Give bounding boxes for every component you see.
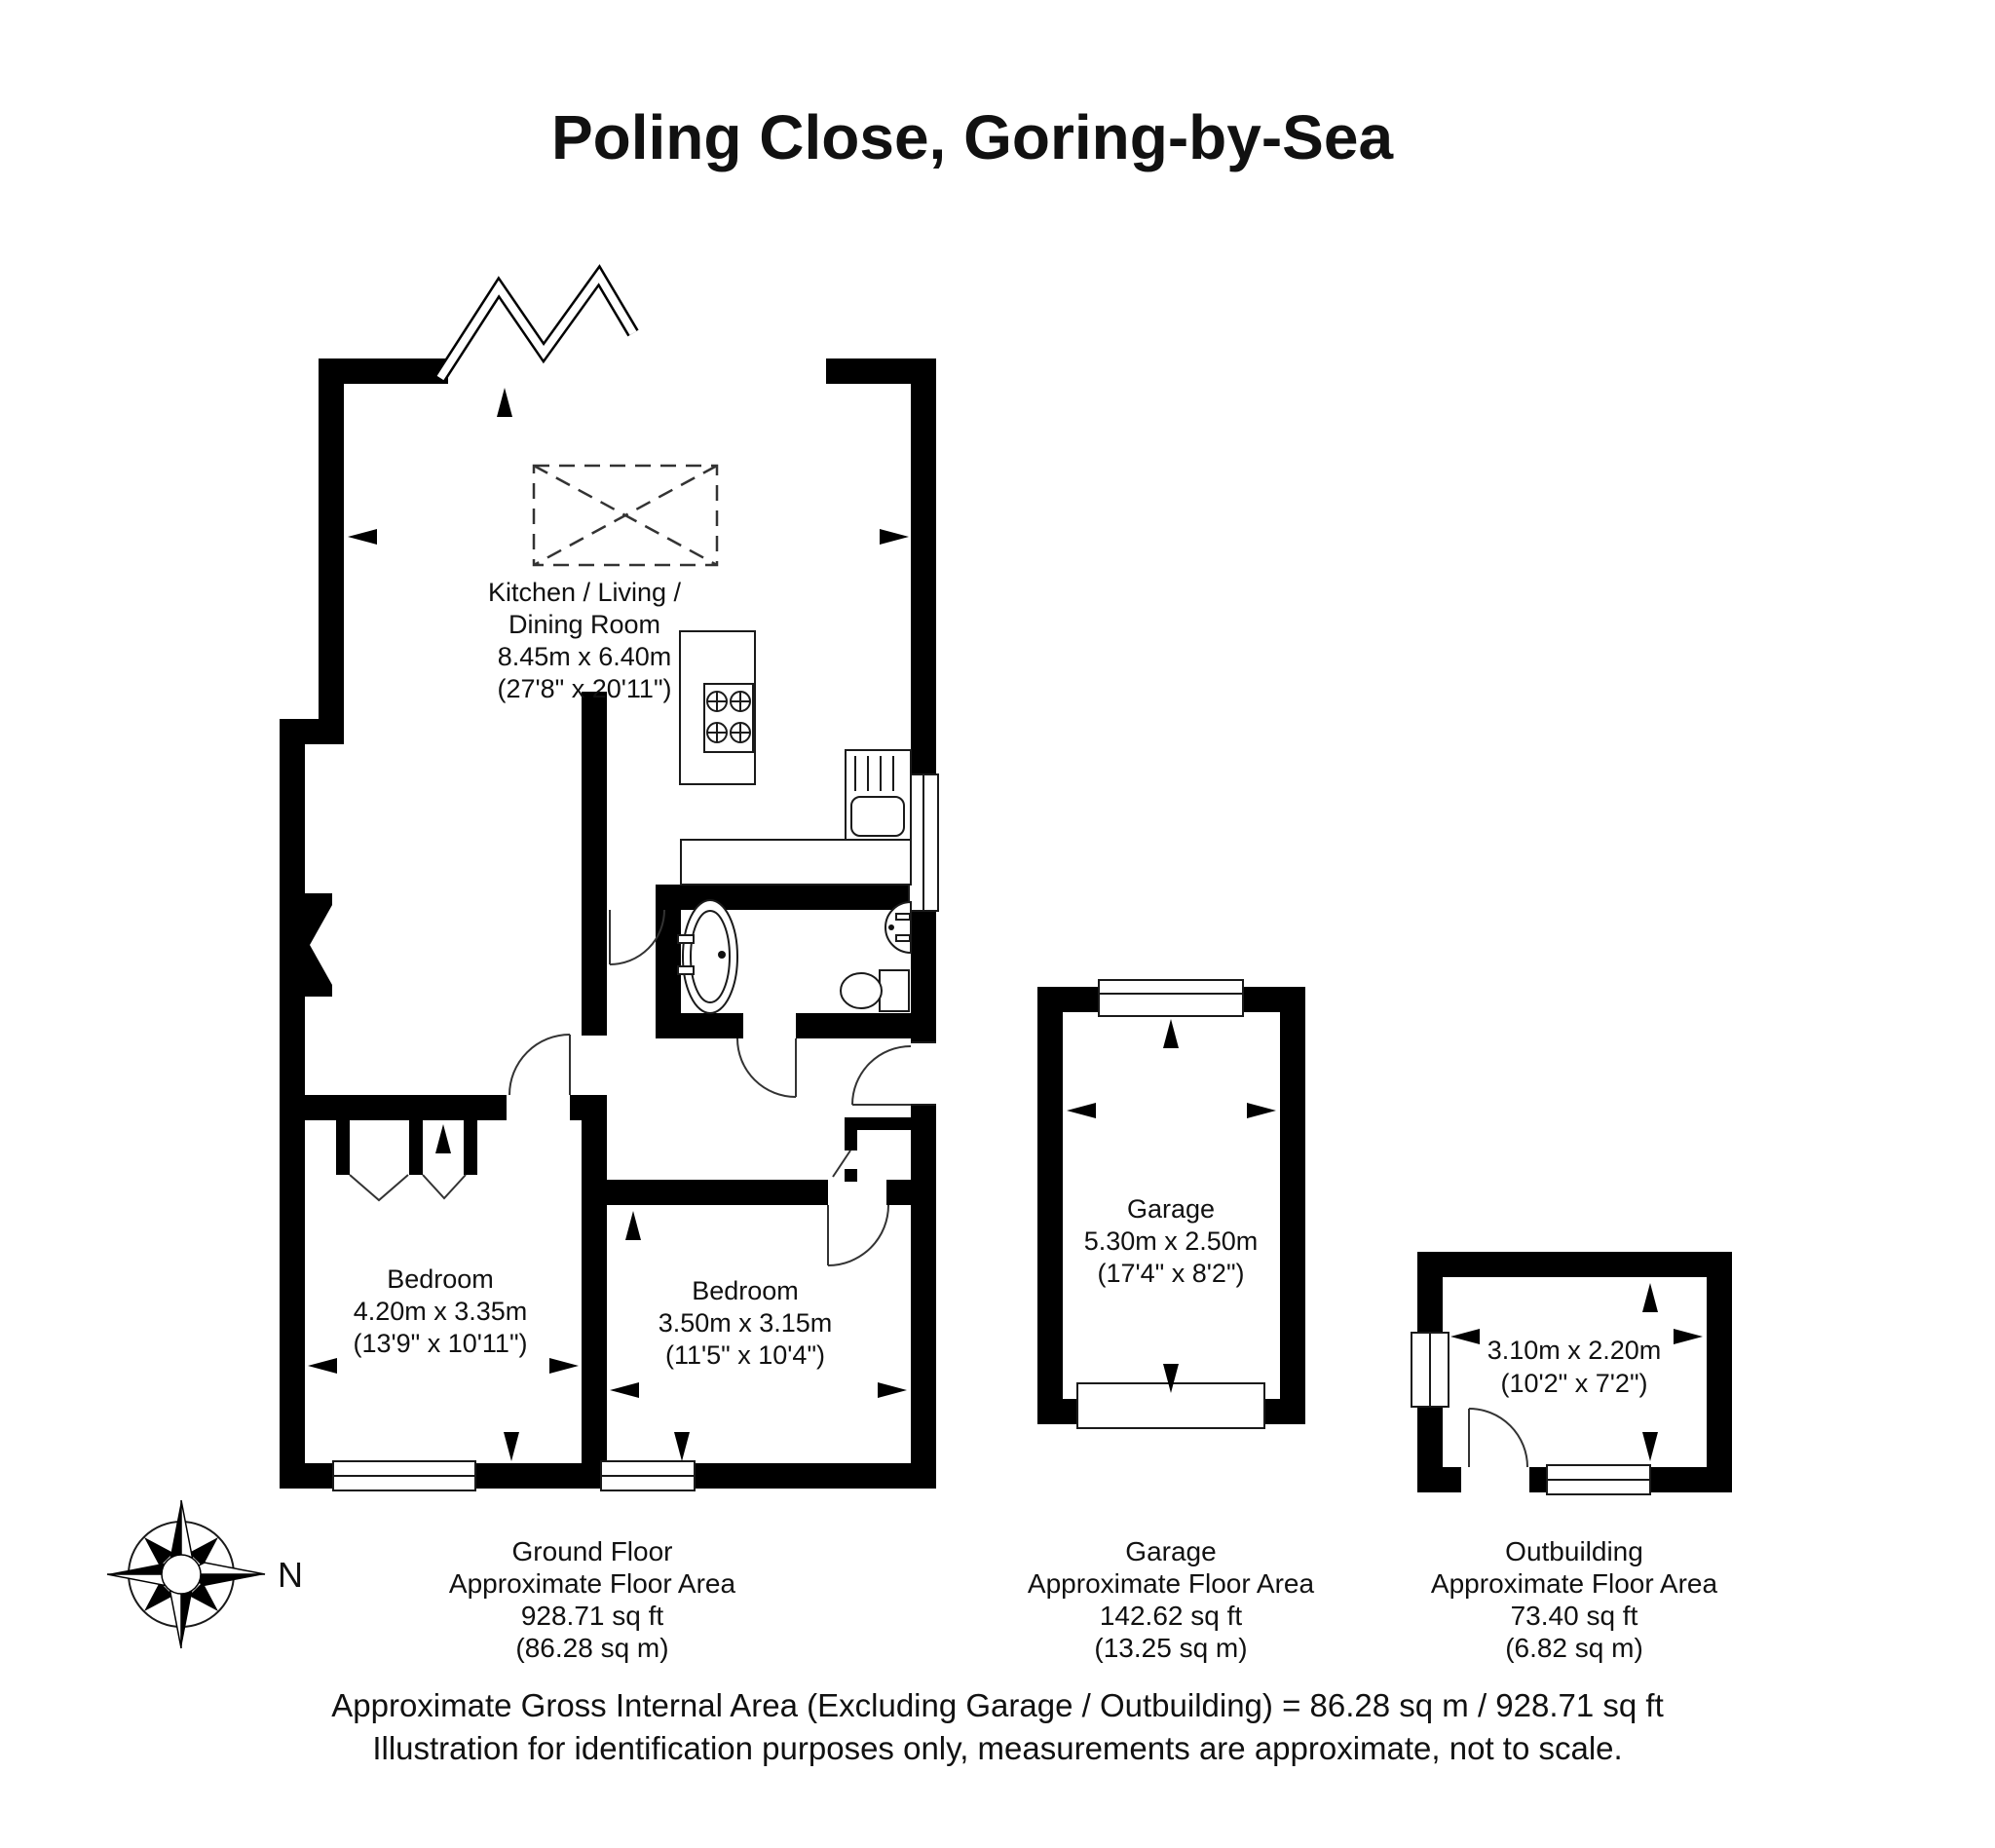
sink-icon (851, 797, 904, 836)
kitchen-label: Kitchen / Living / Dining Room 8.45m x 6… (488, 578, 682, 703)
outbuilding-dims-metric: 3.10m x 2.20m (1487, 1336, 1662, 1365)
kitchen-name-line1: Kitchen / Living / (488, 578, 682, 607)
bedroom1-label: Bedroom 4.20m x 3.35m (13'9" x 10'11") (353, 1264, 527, 1358)
floorplan-canvas: Poling Close, Goring-by-Sea (0, 0, 1995, 1848)
closet-wall-1 (336, 1120, 350, 1175)
outbuilding-door (1461, 1409, 1529, 1494)
cupboard-wall-left-upper (845, 1117, 857, 1150)
dimension-arrow (435, 1124, 451, 1153)
kitchen-dims-imperial: (27'8" x 20'11") (497, 674, 671, 703)
wall-bedroom2-top (582, 1180, 828, 1205)
wall-left-upper (319, 358, 344, 744)
dimension-arrow (1642, 1432, 1658, 1461)
outbuilding-window-left (1412, 1333, 1449, 1407)
dimension-arrow (610, 1382, 639, 1398)
bedroom1-dims-metric: 4.20m x 3.35m (354, 1297, 528, 1326)
closet-folding-doors (350, 1175, 466, 1200)
wall-bathroom-bottom-left (656, 1013, 743, 1038)
dimension-arrow (878, 1382, 907, 1398)
outbuilding-window-bottom (1547, 1465, 1650, 1494)
door-bathroom (737, 1038, 796, 1097)
window-kitchen-right (909, 774, 938, 911)
closet-wall-2 (409, 1120, 423, 1175)
bedroom1-dims-imperial: (13'9" x 10'11") (353, 1329, 527, 1358)
garage-wall-left (1037, 987, 1063, 1424)
footer-line2: Illustration for identification purposes… (372, 1730, 1622, 1766)
closet-wall-3 (464, 1120, 477, 1175)
outbuilding-area-title: Outbuilding (1505, 1536, 1643, 1566)
window-bedroom2 (601, 1461, 695, 1490)
garage-area-title: Garage (1125, 1536, 1216, 1566)
ground-floor-sqm: (86.28 sq m) (515, 1633, 668, 1663)
door-bedroom1 (509, 1035, 570, 1095)
wall-bathroom-top (656, 885, 911, 910)
compass-north-label: N (278, 1555, 303, 1595)
garage-name: Garage (1127, 1194, 1215, 1224)
garage-dims-imperial: (17'4" x 8'2") (1097, 1259, 1244, 1288)
ground-floor-title: Ground Floor (512, 1536, 673, 1566)
wall-bedroom2-top-stub (886, 1180, 911, 1205)
ground-floor-subtitle: Approximate Floor Area (449, 1568, 736, 1599)
garage-area-sqm: (13.25 sq m) (1094, 1633, 1247, 1663)
garage-dims-metric: 5.30m x 2.50m (1084, 1226, 1259, 1256)
garage-wall-right (1280, 987, 1305, 1424)
wall-left-lower (280, 719, 305, 1489)
bedroom2-dims-imperial: (11'5" x 10'4") (665, 1340, 825, 1370)
hob-icon (704, 684, 753, 752)
bathtub-icon (678, 900, 737, 1013)
floorplan-page: Poling Close, Goring-by-Sea (0, 0, 1995, 1848)
dimension-arrow (1674, 1329, 1703, 1344)
dimension-arrow (1163, 1019, 1179, 1048)
kitchen-dims-metric: 8.45m x 6.40m (498, 642, 672, 671)
doors (350, 910, 938, 1265)
garage-plan: Garage 5.30m x 2.50m (17'4" x 8'2") (1037, 980, 1305, 1428)
dimension-arrow (674, 1432, 690, 1461)
compass-rose-icon: N (107, 1500, 303, 1648)
kitchen-name-line2: Dining Room (508, 610, 660, 639)
dimension-arrow (1642, 1283, 1658, 1312)
outbuilding-area-subtitle: Approximate Floor Area (1431, 1568, 1718, 1599)
dimension-arrow (504, 1432, 519, 1461)
garage-area-block: Garage Approximate Floor Area 142.62 sq … (1028, 1536, 1315, 1663)
cupboard-wall-left-lower (845, 1169, 857, 1182)
ground-floor-sqft: 928.71 sq ft (521, 1601, 664, 1631)
garage-area-sqft: 142.62 sq ft (1100, 1601, 1243, 1631)
window-bedroom1 (333, 1461, 475, 1490)
zigzag-opening-icon (440, 276, 633, 378)
wall-bedroom1-top-stub (570, 1095, 607, 1120)
dimension-arrow (348, 529, 377, 545)
outbuilding-dims-imperial: (10'2" x 7'2") (1500, 1369, 1647, 1398)
dimension-arrow (549, 1358, 579, 1374)
footer-disclaimer: Approximate Gross Internal Area (Excludi… (331, 1687, 1664, 1766)
dimension-arrow (497, 388, 512, 417)
dimension-arrow (1247, 1103, 1276, 1118)
footer-line1: Approximate Gross Internal Area (Excludi… (331, 1687, 1664, 1723)
bedroom2-label: Bedroom 3.50m x 3.15m (11'5" x 10'4") (659, 1276, 833, 1370)
bedroom2-name: Bedroom (692, 1276, 799, 1305)
wall-bedroom-divider (582, 1095, 607, 1463)
garage-window (1099, 980, 1243, 1016)
toilet-icon (841, 970, 909, 1011)
garage-area-subtitle: Approximate Floor Area (1028, 1568, 1315, 1599)
outbuilding-area-block: Outbuilding Approximate Floor Area 73.40… (1431, 1536, 1718, 1663)
wall-right (911, 358, 936, 1489)
dimension-arrow (308, 1358, 337, 1374)
outbuilding-area-sqm: (6.82 sq m) (1505, 1633, 1643, 1663)
ground-floor-area-block: Ground Floor Approximate Floor Area 928.… (449, 1536, 736, 1663)
door-entrance (852, 1042, 938, 1105)
kitchen-island (680, 631, 755, 784)
outbuilding-plan: 3.10m x 2.20m (10'2" x 7'2") (1412, 1252, 1732, 1494)
wall-bedroom1-top (305, 1095, 507, 1120)
dimension-arrow (1067, 1103, 1096, 1118)
dimension-arrow (1450, 1329, 1480, 1344)
dimension-arrow (880, 529, 909, 545)
page-title: Poling Close, Goring-by-Sea (551, 102, 1394, 172)
bedroom2-dims-metric: 3.50m x 3.15m (659, 1308, 833, 1338)
door-bedroom2 (828, 1205, 888, 1265)
outbuilding-wall-top (1417, 1252, 1732, 1277)
wall-kitchen-hall (582, 692, 607, 1036)
bathroom (678, 900, 911, 1013)
outbuilding-wall-right (1707, 1252, 1732, 1492)
skylight-icon (534, 466, 717, 565)
wall-bathroom-bottom-right (796, 1013, 911, 1038)
outbuilding-area-sqft: 73.40 sq ft (1511, 1601, 1638, 1631)
dimension-arrow (625, 1211, 641, 1240)
worktop (681, 840, 911, 885)
bedroom1-name: Bedroom (387, 1264, 494, 1294)
